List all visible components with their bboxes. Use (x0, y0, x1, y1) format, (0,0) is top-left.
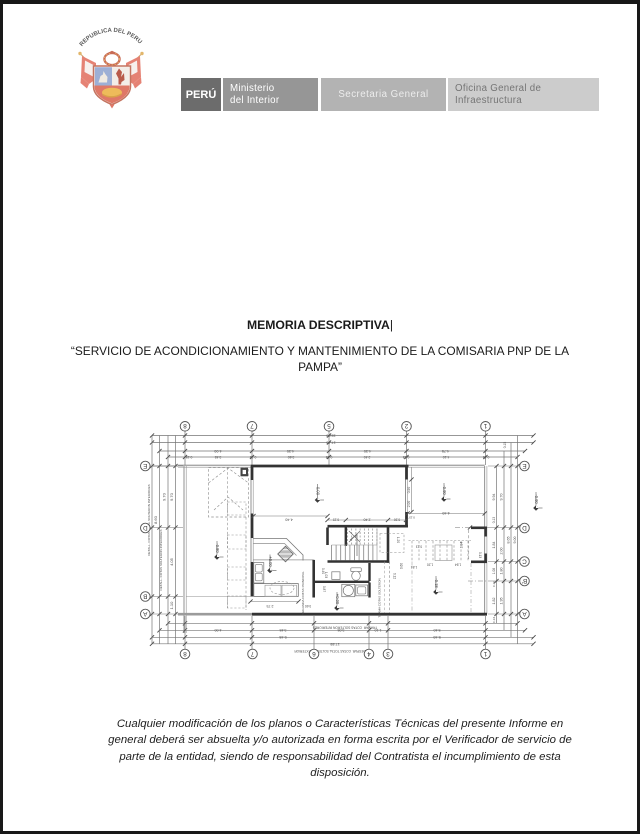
svg-text:0.15: 0.15 (250, 455, 257, 459)
svg-text:1: 1 (483, 650, 487, 657)
svg-text:17.85: 17.85 (330, 642, 340, 646)
svg-text:8.65: 8.65 (507, 537, 511, 544)
svg-text:3: 3 (386, 650, 390, 657)
svg-text:0.00: 0.00 (315, 487, 320, 496)
svg-text:1.84: 1.84 (460, 542, 464, 549)
svg-text:SEGUNDA COTAS PRINCIPAL: SEGUNDA COTAS PRINCIPAL (301, 571, 305, 615)
svg-text:7: 7 (250, 422, 254, 429)
svg-text:1.84: 1.84 (492, 542, 496, 549)
svg-text:0.12: 0.12 (393, 573, 397, 579)
svg-text:0.15: 0.15 (326, 455, 333, 459)
svg-text:4.30: 4.30 (287, 449, 294, 453)
svg-text:0.87: 0.87 (322, 586, 326, 592)
svg-text:DESPAR. COTAS TOTAL SOLTERON E: DESPAR. COTAS TOTAL SOLTERON EXTERIOR (294, 649, 366, 653)
svg-text:8: 8 (183, 650, 187, 657)
svg-text:0.15: 0.15 (403, 455, 410, 459)
svg-text:8.60: 8.60 (153, 515, 158, 524)
svg-text:-0.80: -0.80 (215, 543, 220, 553)
svg-text:1.20: 1.20 (427, 563, 433, 567)
svg-text:2.00: 2.00 (500, 548, 504, 555)
svg-text:0.13: 0.13 (478, 552, 482, 558)
svg-text:1.82: 1.82 (492, 598, 496, 605)
svg-text:DETALL. COTAS TOTAL SOLTERON I: DETALL. COTAS TOTAL SOLTERON INTERIORES (147, 484, 151, 555)
svg-text:DETALL. COTAS SOLTERON INTERIO: DETALL. COTAS SOLTERON INTERIORES (159, 529, 163, 590)
svg-text:0.15: 0.15 (186, 455, 193, 459)
svg-text:3.60: 3.60 (288, 455, 295, 459)
svg-text:0.13: 0.13 (492, 617, 496, 623)
svg-text:0.15: 0.15 (333, 518, 339, 522)
svg-text:0.15: 0.15 (409, 516, 415, 520)
svg-text:9.70: 9.70 (169, 492, 174, 501)
svg-text:1.80: 1.80 (500, 568, 504, 575)
svg-text:4: 4 (367, 650, 371, 657)
svg-text:9.94: 9.94 (492, 494, 496, 501)
svg-text:2.00: 2.00 (407, 501, 411, 508)
svg-text:5.40: 5.40 (434, 628, 441, 632)
svg-text:0.13: 0.13 (416, 545, 422, 549)
svg-text:2.40: 2.40 (364, 455, 371, 459)
svg-text:TRAMAR COTAS SOLTERON INTERIO: TRAMAR COTAS SOLTERON INTERIORES (313, 626, 378, 630)
svg-text:B: B (143, 592, 147, 599)
svg-text:-0.90: -0.90 (442, 485, 447, 495)
svg-text:1.20: 1.20 (396, 537, 400, 543)
svg-text:1: 1 (483, 422, 487, 429)
svg-text:1.10: 1.10 (169, 601, 174, 610)
svg-text:TRAMA COTAS SOLTERON: TRAMA COTAS SOLTERON (378, 578, 382, 618)
svg-text:1.08: 1.08 (492, 568, 496, 575)
svg-text:18.00: 18.00 (326, 433, 336, 437)
svg-text:1.95: 1.95 (500, 598, 504, 605)
svg-text:9.70: 9.70 (162, 492, 167, 501)
svg-text:9.45: 9.45 (279, 635, 286, 639)
svg-text:4.30: 4.30 (364, 449, 371, 453)
svg-text:0.60: 0.60 (400, 563, 404, 569)
svg-text:0.60: 0.60 (305, 604, 311, 608)
svg-text:0.15: 0.15 (483, 455, 490, 459)
svg-text:4.75: 4.75 (442, 449, 449, 453)
svg-text:4.40: 4.40 (285, 518, 292, 522)
svg-text:D: D (522, 524, 527, 531)
svg-text:5: 5 (327, 422, 331, 429)
svg-text:-0.18: -0.18 (434, 578, 439, 588)
svg-text:1.84: 1.84 (411, 565, 417, 569)
svg-text:-0.90: -0.90 (534, 494, 539, 504)
svg-text:2: 2 (404, 422, 408, 429)
svg-text:4.10: 4.10 (443, 455, 450, 459)
svg-text:0.30: 0.30 (394, 518, 400, 522)
svg-text:B': B' (522, 577, 527, 584)
svg-text:C: C (522, 557, 527, 564)
svg-text:D: D (143, 524, 148, 531)
svg-text:4.05: 4.05 (169, 557, 174, 566)
svg-text:4.00: 4.00 (214, 449, 221, 453)
svg-text:8: 8 (183, 422, 187, 429)
svg-text:3.45: 3.45 (280, 628, 287, 632)
svg-text:+0.00: +0.00 (268, 556, 273, 567)
svg-text:7: 7 (250, 650, 254, 657)
svg-text:0.13: 0.13 (492, 517, 496, 524)
svg-text:0.90: 0.90 (407, 487, 411, 494)
svg-text:0.15: 0.15 (503, 442, 507, 449)
svg-text:E: E (522, 462, 526, 469)
svg-text:4.00: 4.00 (215, 628, 222, 632)
svg-text:4.40: 4.40 (442, 511, 449, 515)
svg-text:2.75: 2.75 (267, 604, 274, 608)
svg-text:E: E (143, 462, 147, 469)
svg-text:9.00: 9.00 (513, 537, 517, 544)
svg-text:2.40: 2.40 (364, 518, 371, 522)
svg-text:3.48: 3.48 (215, 455, 222, 459)
svg-text:+0.00: +0.00 (335, 594, 340, 605)
svg-text:1.03: 1.03 (324, 572, 328, 578)
svg-text:9.70: 9.70 (500, 494, 504, 501)
svg-text:1.84: 1.84 (455, 563, 461, 567)
svg-text:17.45: 17.45 (326, 440, 336, 444)
svg-text:6: 6 (312, 650, 316, 657)
svg-text:0.10: 0.10 (492, 581, 496, 587)
svg-text:5.40: 5.40 (433, 635, 440, 639)
